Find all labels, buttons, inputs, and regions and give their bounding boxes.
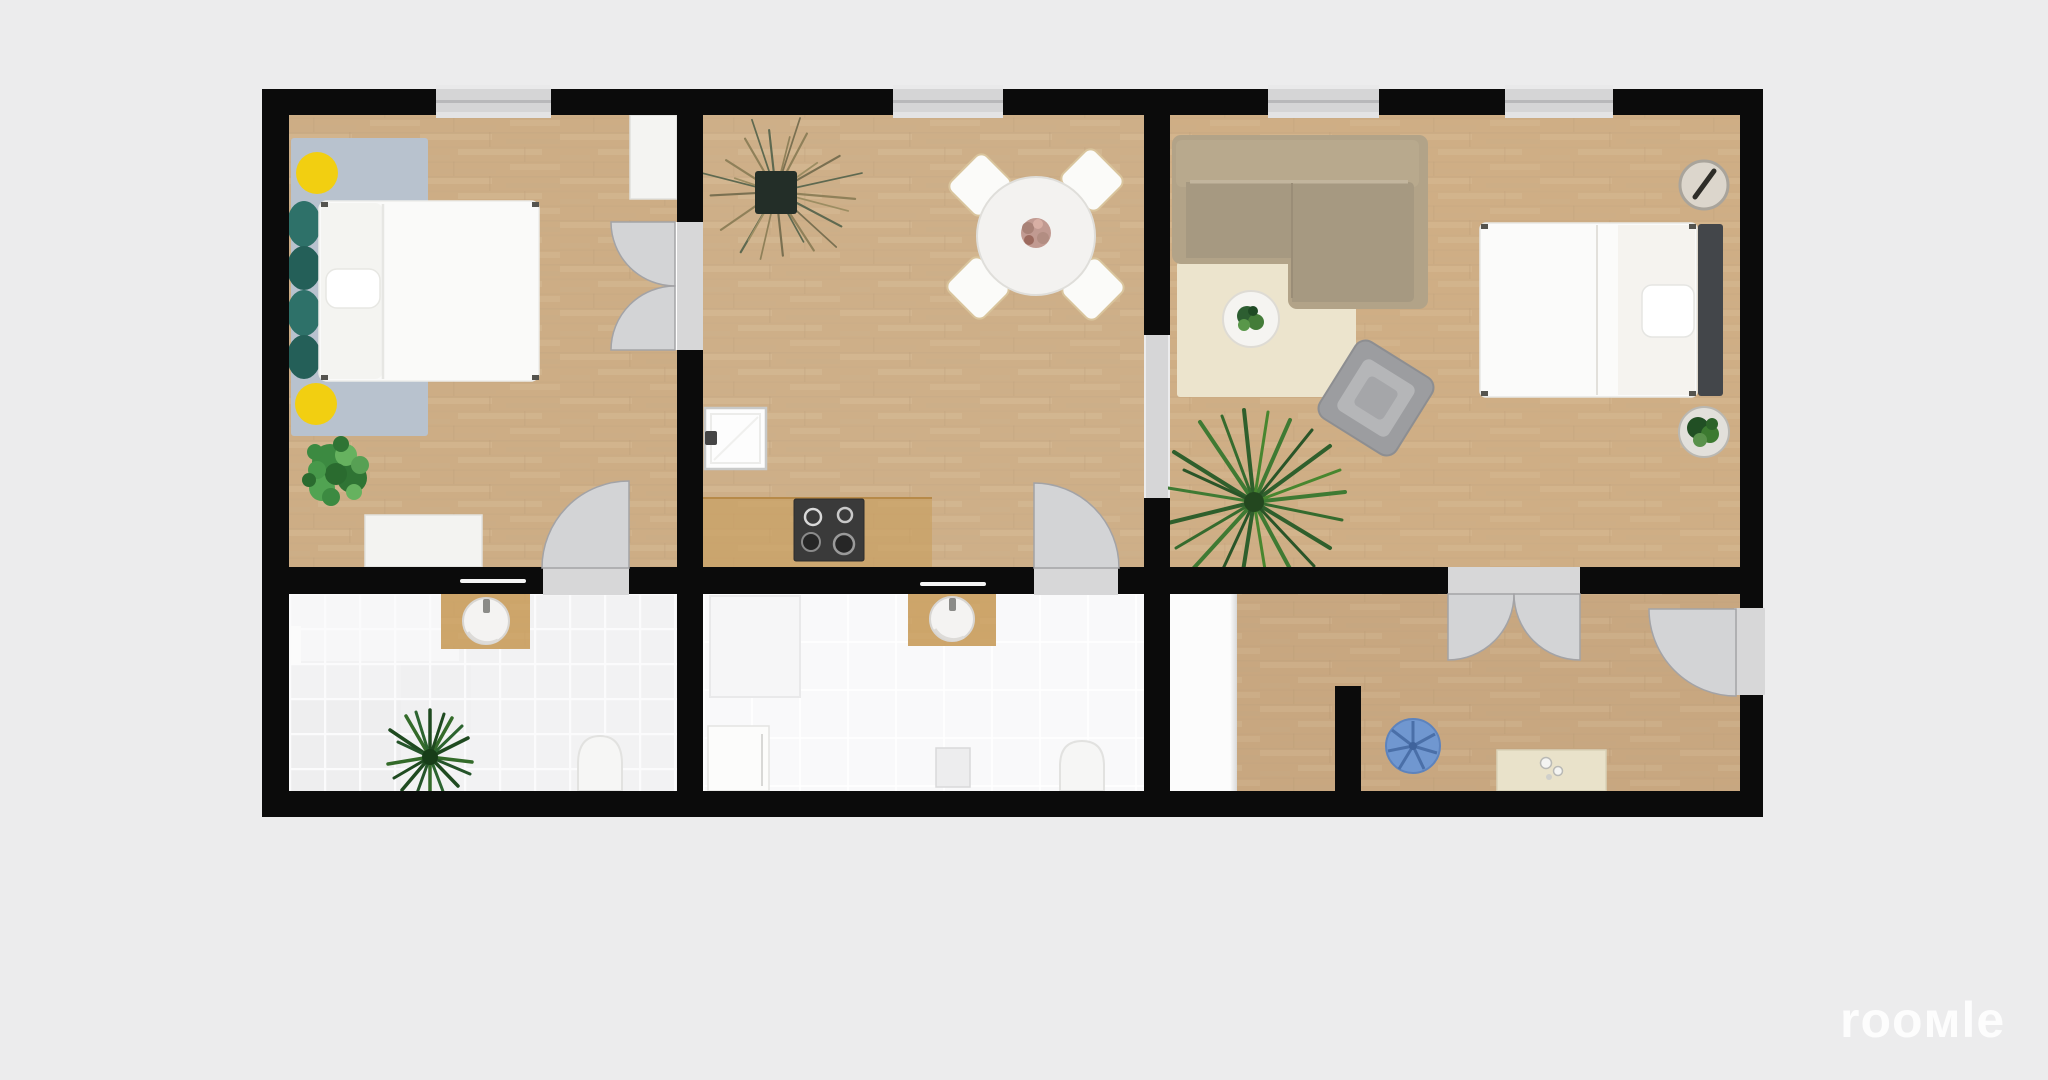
svg-text:rooмle: rooмle bbox=[1840, 992, 2005, 1048]
